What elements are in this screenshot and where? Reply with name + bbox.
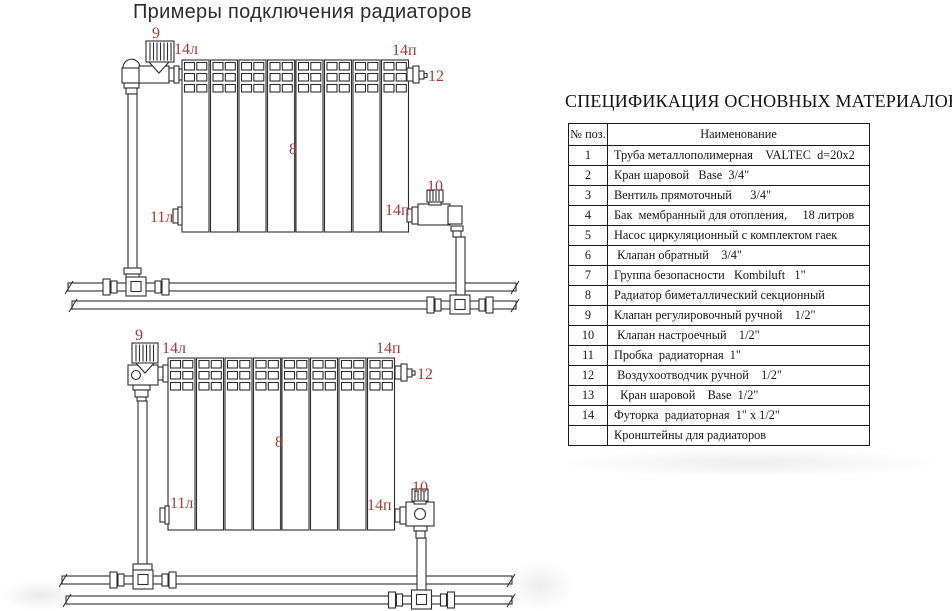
table-row: 8Радиатор биметаллический секционный: [569, 286, 870, 306]
row-num: 1: [569, 146, 608, 166]
pos-label-9: 9: [152, 25, 160, 42]
row-num: 14: [569, 406, 608, 426]
table-row: 10 Клапан настроечный 1/2": [569, 326, 870, 346]
scanned-page: Примеры подключения радиаторов: [0, 0, 952, 611]
row-num: 11: [569, 346, 608, 366]
table-row: 13 Кран шаровой Base 1/2": [569, 386, 870, 406]
tee-fitting: [389, 590, 455, 609]
air-vent: [395, 364, 415, 381]
supply-pipe: [59, 574, 515, 587]
tee-fitting: [427, 295, 493, 314]
row-name: Футорка радиаторная 1" х 1/2": [608, 406, 870, 426]
row-name: Радиатор биметаллический секционный: [608, 286, 870, 306]
row-num: 4: [569, 206, 608, 226]
pos-label-8: 8: [275, 434, 283, 451]
pos-label-14l: 14л: [162, 340, 186, 357]
row-num: 10: [569, 326, 608, 346]
pos-label-14p: 14п: [392, 42, 417, 59]
table-row: 4Бак мембранный для отопления, 18 литров: [569, 206, 870, 226]
row-num: 12: [569, 366, 608, 386]
spec-table: № поз. Наименование 1Труба металлополиме…: [568, 123, 870, 446]
pos-label-14l: 14л: [174, 41, 198, 58]
row-num: 5: [569, 226, 608, 246]
table-row: 11Пробка радиаторная 1": [569, 346, 870, 366]
table-row: 5Насос циркуляционный с комплектом гаек: [569, 226, 870, 246]
row-num: 9: [569, 306, 608, 326]
setting-valve: [407, 190, 463, 237]
pos-label-12: 12: [428, 68, 444, 85]
row-num: 13: [569, 386, 608, 406]
row-num: [569, 426, 608, 446]
scan-artifact: [560, 448, 940, 478]
spec-title: СПЕЦИФИКАЦИЯ ОСНОВНЫХ МАТЕРИАЛОВ: [565, 91, 952, 112]
riser-pipe-right: [456, 237, 465, 295]
row-num: 2: [569, 166, 608, 186]
setting-valve: [395, 489, 434, 538]
riser-pipe-right: [417, 538, 426, 590]
pos-label-10: 10: [427, 178, 443, 195]
row-name: Бак мембранный для отопления, 18 литров: [608, 206, 870, 226]
table-row: 1Труба металлополимерная VALTEC d=20x2: [569, 146, 870, 166]
air-vent: [407, 66, 427, 83]
pos-label-14p: 14п: [376, 340, 401, 357]
row-name: Клапан регулировочный ручной 1/2": [608, 306, 870, 326]
row-name: Кронштейны для радиаторов: [608, 426, 870, 446]
pos-label-10: 10: [412, 479, 428, 496]
row-num: 6: [569, 246, 608, 266]
connection-diagram-1: 9 14л 14п 12 8 11л 10 14п: [65, 25, 519, 314]
table-row: 9Клапан регулировочный ручной 1/2": [569, 306, 870, 326]
spec-header-row: № поз. Наименование: [569, 124, 870, 146]
table-row: Кронштейны для радиаторов: [569, 426, 870, 446]
pos-label-11l: 11л: [170, 495, 193, 512]
spec-col-name-header: Наименование: [608, 124, 870, 146]
radiator-connection-diagrams: 9 14л 14п 12 8 11л 10 14п: [0, 0, 530, 611]
row-num: 3: [569, 186, 608, 206]
row-name: Группа безопасности Kombiluft 1": [608, 266, 870, 286]
row-name: Пробка радиаторная 1": [608, 346, 870, 366]
table-row: 6 Клапан обратный 3/4": [569, 246, 870, 266]
table-row: 14Футорка радиаторная 1" х 1/2": [569, 406, 870, 426]
tee-fitting: [110, 570, 176, 589]
pos-label-9: 9: [135, 327, 143, 344]
radiator-plug: [173, 207, 182, 225]
row-name: Вентиль прямоточный 3/4": [608, 186, 870, 206]
pos-label-11l: 11л: [150, 209, 173, 226]
row-name: Воздухоотводчик ручной 1/2": [608, 366, 870, 386]
row-name: Клапан настроечный 1/2": [608, 326, 870, 346]
table-row: 12 Воздухоотводчик ручной 1/2": [569, 366, 870, 386]
pos-label-14p-bottom: 14п: [385, 202, 410, 219]
row-name: Насос циркуляционный с комплектом гаек: [608, 226, 870, 246]
row-num: 8: [569, 286, 608, 306]
pos-label-8: 8: [289, 141, 297, 158]
row-name: Кран шаровой Base 3/4": [608, 166, 870, 186]
pos-label-12: 12: [417, 366, 433, 383]
table-row: 2Кран шаровой Base 3/4": [569, 166, 870, 186]
riser-pipe-left: [122, 59, 141, 281]
row-name: Кран шаровой Base 1/2": [608, 386, 870, 406]
pos-label-14p-bottom: 14п: [367, 497, 392, 514]
table-row: 7Группа безопасности Kombiluft 1": [569, 266, 870, 286]
riser-pipe-left: [133, 385, 152, 570]
row-name: Клапан обратный 3/4": [608, 246, 870, 266]
row-name: Труба металлополимерная VALTEC d=20x2: [608, 146, 870, 166]
radiator-plug: [160, 506, 169, 524]
spec-col-num-header: № поз.: [569, 124, 608, 146]
table-row: 3Вентиль прямоточный 3/4": [569, 186, 870, 206]
row-num: 7: [569, 266, 608, 286]
tee-fitting: [103, 277, 169, 296]
connection-diagram-2: 9 14л 14п 12 8 11л 14п 10: [59, 327, 515, 609]
